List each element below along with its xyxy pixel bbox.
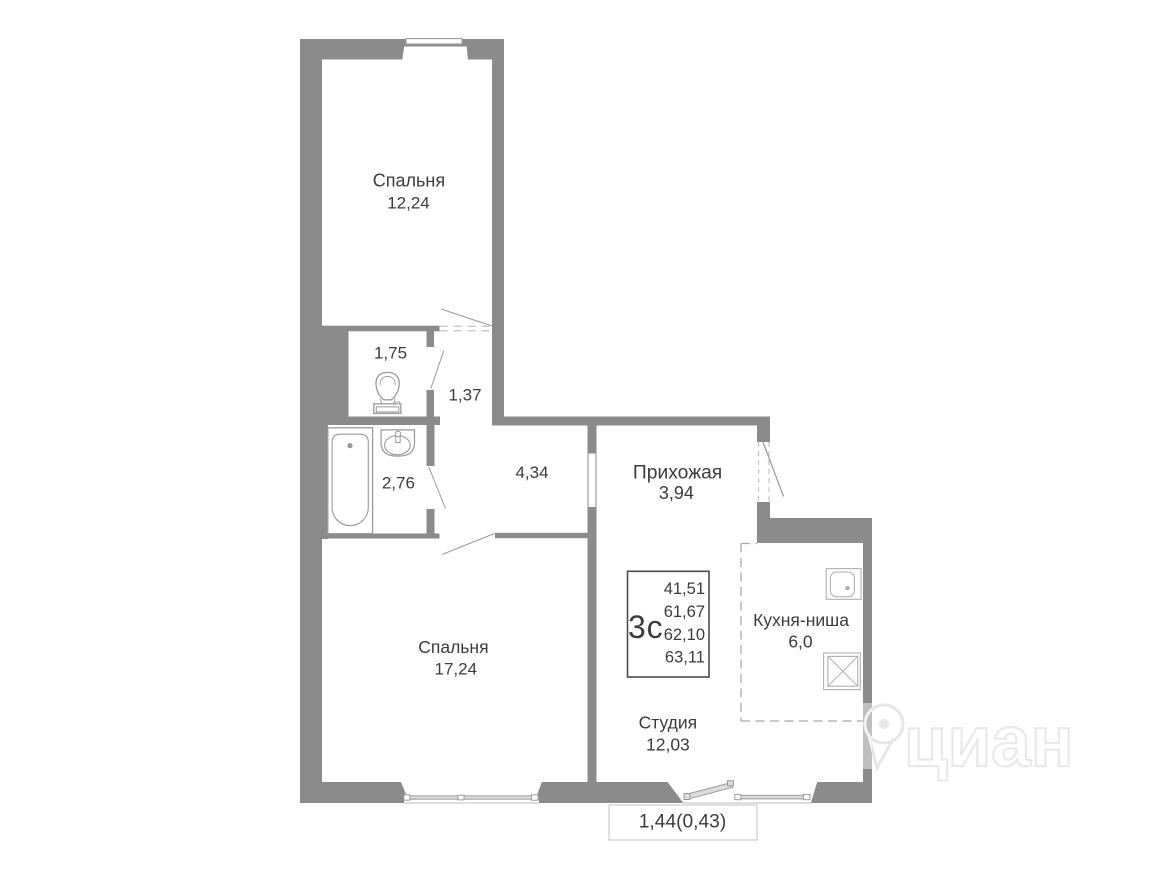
- svg-text:2,76: 2,76: [382, 474, 415, 493]
- svg-text:17,24: 17,24: [435, 660, 478, 679]
- svg-text:Кухня-ниша: Кухня-ниша: [753, 610, 849, 630]
- svg-text:1,44(0,43): 1,44(0,43): [639, 811, 726, 832]
- svg-text:4,34: 4,34: [515, 463, 548, 482]
- svg-text:62,10: 62,10: [664, 626, 705, 644]
- svg-text:41,51: 41,51: [664, 580, 705, 598]
- svg-text:63,11: 63,11: [665, 649, 705, 667]
- svg-text:Спальня: Спальня: [418, 637, 488, 657]
- svg-text:1,37: 1,37: [448, 386, 481, 405]
- svg-text:Прихожая: Прихожая: [633, 462, 722, 483]
- svg-text:Спальня: Спальня: [373, 170, 445, 190]
- svg-text:1,75: 1,75: [374, 344, 407, 363]
- svg-text:6,0: 6,0: [788, 631, 813, 651]
- svg-text:3,94: 3,94: [659, 483, 694, 503]
- svg-text:циан: циан: [904, 703, 1074, 782]
- svg-text:3с: 3с: [628, 609, 663, 645]
- svg-text:61,67: 61,67: [664, 603, 705, 621]
- svg-text:12,03: 12,03: [646, 735, 690, 755]
- svg-text:12,24: 12,24: [387, 194, 430, 213]
- svg-text:Студия: Студия: [639, 713, 697, 733]
